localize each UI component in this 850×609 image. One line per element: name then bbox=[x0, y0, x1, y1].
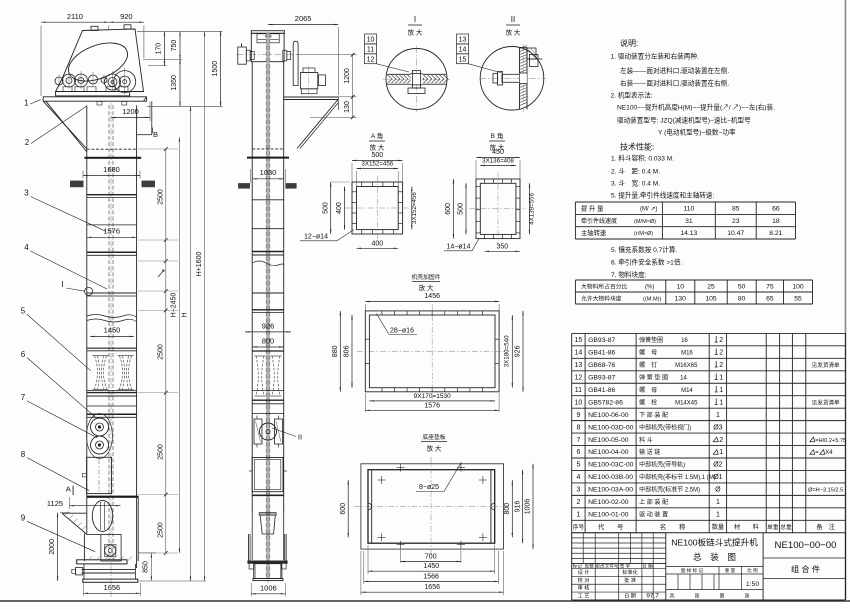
svg-text:2: 2 bbox=[719, 362, 723, 369]
svg-text:螺 母 M14: 螺 母 M14 bbox=[639, 386, 693, 394]
svg-text:工 艺: 工 艺 bbox=[578, 592, 590, 599]
svg-text:放 大: 放 大 bbox=[427, 444, 442, 453]
svg-text:弹 簧 垫 圈 14: 弹 簧 垫 圈 14 bbox=[639, 373, 687, 381]
svg-text:14.13: 14.13 bbox=[680, 230, 697, 237]
svg-text:14: 14 bbox=[459, 47, 467, 54]
svg-text:10: 10 bbox=[367, 37, 375, 44]
svg-text:放 大: 放 大 bbox=[408, 28, 423, 37]
svg-text:28−ø16: 28−ø16 bbox=[390, 328, 414, 335]
svg-text:8: 8 bbox=[576, 424, 580, 431]
svg-text:2. 机型表示法:: 2. 机型表示法: bbox=[611, 91, 653, 100]
svg-text:1: 1 bbox=[719, 449, 723, 456]
svg-text:5. 提升量,牵引件线速度和主轴转速:: 5. 提升量,牵引件线速度和主轴转速: bbox=[611, 191, 714, 200]
svg-text:NE100-03B-00: NE100-03B-00 bbox=[588, 474, 633, 481]
svg-text:130: 130 bbox=[344, 101, 351, 113]
svg-text:NE100−−提升机高度H(M)−−提升量(↗/ ↗)−−左: NE100−−提升机高度H(M)−−提升量(↗/ ↗)−−左(右)装. bbox=[617, 103, 775, 112]
svg-text:1576: 1576 bbox=[103, 227, 120, 236]
svg-text:放 大: 放 大 bbox=[370, 143, 385, 152]
svg-text:Ø: Ø bbox=[715, 487, 721, 494]
svg-text:签 字: 签 字 bbox=[620, 562, 631, 568]
svg-text:700: 700 bbox=[425, 554, 437, 561]
svg-text:75: 75 bbox=[766, 284, 774, 291]
svg-text:设 计: 设 计 bbox=[578, 568, 590, 576]
svg-text:65: 65 bbox=[766, 296, 774, 303]
svg-text:13: 13 bbox=[459, 37, 467, 44]
svg-text:1:50: 1:50 bbox=[746, 581, 759, 588]
svg-text:第: 第 bbox=[719, 593, 724, 600]
svg-text:12: 12 bbox=[575, 374, 583, 381]
svg-text:8−ø25: 8−ø25 bbox=[419, 484, 439, 491]
svg-text:机壳加固件: 机壳加固件 bbox=[412, 273, 441, 281]
svg-text:80: 80 bbox=[738, 296, 746, 303]
svg-text:2: 2 bbox=[25, 138, 30, 147]
svg-text:校 对: 校 对 bbox=[578, 576, 590, 584]
svg-text:见发货清单: 见发货清单 bbox=[812, 398, 840, 406]
svg-text:6: 6 bbox=[21, 350, 26, 359]
svg-text:100: 100 bbox=[792, 284, 804, 291]
svg-text:=H/0.2+5.75: =H/0.2+5.75 bbox=[815, 438, 846, 444]
svg-text:GB93-87: GB93-87 bbox=[588, 374, 615, 381]
svg-text:7: 7 bbox=[576, 437, 580, 444]
svg-text:5. 镶充系数按 0.7计算.: 5. 镶充系数按 0.7计算. bbox=[611, 245, 677, 254]
svg-text:弹簧垫圈 16: 弹簧垫圈 16 bbox=[639, 336, 688, 344]
svg-text:2110: 2110 bbox=[67, 12, 83, 21]
svg-text:I: I bbox=[414, 15, 416, 24]
svg-text:右装——面对进料口,驱动装置在右侧.: 右装——面对进料口,驱动装置在右侧. bbox=[620, 79, 729, 88]
svg-text:GB41-86: GB41-86 bbox=[588, 350, 615, 357]
svg-text:中部机壳(非标节 1.5M),1 (M): 中部机壳(非标节 1.5M),1 (M) bbox=[639, 473, 716, 481]
svg-text:中部机壳(标准节 2.5M): 中部机壳(标准节 2.5M) bbox=[639, 486, 700, 494]
svg-text:2: 2 bbox=[719, 437, 723, 444]
svg-text:170: 170 bbox=[156, 43, 163, 55]
svg-text:料 斗: 料 斗 bbox=[639, 436, 653, 444]
svg-text:3X136=408: 3X136=408 bbox=[482, 158, 514, 165]
svg-text:驱动装置型号: JZQ(减速机型号)−速比−机型号: 驱动装置型号: JZQ(减速机型号)−速比−机型号 bbox=[617, 116, 751, 125]
svg-text:66: 66 bbox=[772, 206, 780, 213]
svg-text:1. 驱动装置分左装和右装两种.: 1. 驱动装置分左装和右装两种. bbox=[611, 52, 699, 61]
svg-text:底座垫板: 底座垫板 bbox=[422, 433, 445, 441]
svg-text:5: 5 bbox=[576, 462, 580, 469]
svg-text:NE100-05-00: NE100-05-00 bbox=[588, 437, 629, 444]
svg-text:450: 450 bbox=[492, 149, 504, 156]
svg-text:2: 2 bbox=[719, 337, 723, 344]
svg-text:3X152=456: 3X152=456 bbox=[361, 161, 393, 168]
svg-text:B 角: B 角 bbox=[491, 131, 504, 140]
svg-text:110: 110 bbox=[683, 206, 694, 213]
svg-text:2500: 2500 bbox=[157, 189, 164, 205]
svg-text:2. 斗 距: 0.4 M.: 2. 斗 距: 0.4 M. bbox=[611, 168, 660, 176]
svg-text:NE100-06-00: NE100-06-00 bbox=[588, 412, 629, 419]
svg-text:600: 600 bbox=[340, 503, 347, 515]
svg-text:NE100-03D-00: NE100-03D-00 bbox=[588, 424, 634, 431]
svg-text:数量: 数量 bbox=[712, 523, 724, 531]
svg-text:4X139=556: 4X139=556 bbox=[529, 192, 536, 224]
svg-text:Ø3: Ø3 bbox=[713, 424, 722, 431]
svg-text:II: II bbox=[511, 15, 515, 24]
svg-text:2500: 2500 bbox=[157, 522, 164, 538]
svg-text:I: I bbox=[61, 280, 63, 289]
svg-text:见发货清单: 见发货清单 bbox=[812, 361, 840, 369]
svg-text:A: A bbox=[66, 485, 71, 494]
svg-text:1566: 1566 bbox=[423, 573, 439, 580]
svg-text:2065: 2065 bbox=[295, 14, 312, 23]
svg-text:10: 10 bbox=[677, 284, 685, 291]
svg-text:9: 9 bbox=[576, 412, 580, 419]
svg-text:GB68-76: GB68-76 bbox=[588, 362, 615, 369]
svg-text:技术性能:: 技术性能: bbox=[620, 142, 654, 152]
svg-text:10.47: 10.47 bbox=[727, 230, 744, 237]
svg-text:NE100-01-00: NE100-01-00 bbox=[588, 512, 629, 519]
svg-text:NE100−00−00: NE100−00−00 bbox=[775, 540, 837, 551]
svg-text:12: 12 bbox=[367, 57, 375, 64]
svg-text:6: 6 bbox=[576, 449, 580, 456]
svg-text:1200: 1200 bbox=[122, 107, 139, 116]
svg-text:更改文件号: 更改文件号 bbox=[596, 562, 619, 569]
svg-text:8.21: 8.21 bbox=[769, 230, 782, 237]
svg-text:800: 800 bbox=[504, 503, 511, 515]
svg-text:750: 750 bbox=[171, 40, 178, 52]
svg-text:10: 10 bbox=[575, 399, 583, 406]
svg-text:=: = bbox=[815, 450, 819, 456]
svg-text:处数: 处数 bbox=[585, 562, 595, 569]
svg-text:3: 3 bbox=[576, 487, 580, 494]
svg-text:920: 920 bbox=[120, 12, 133, 21]
svg-text:NE100-03A-00: NE100-03A-00 bbox=[588, 487, 633, 494]
svg-text:主轴转速: 主轴转速 bbox=[581, 228, 607, 237]
svg-text:1456: 1456 bbox=[424, 293, 440, 300]
svg-text:1006: 1006 bbox=[260, 584, 277, 593]
svg-text:1350: 1350 bbox=[171, 75, 178, 91]
svg-text:螺 母 M16: 螺 母 M16 bbox=[639, 349, 693, 357]
svg-text:总重: 总重 bbox=[780, 523, 792, 531]
svg-text:审 核: 审 核 bbox=[578, 584, 590, 592]
svg-text:H+1600: H+1600 bbox=[196, 252, 203, 277]
svg-text:105: 105 bbox=[705, 296, 717, 303]
svg-text:下 部 装 配: 下 部 装 配 bbox=[639, 411, 668, 419]
svg-text:400: 400 bbox=[372, 241, 384, 248]
svg-text:15: 15 bbox=[575, 337, 583, 344]
svg-text:12−ø14: 12−ø14 bbox=[304, 234, 328, 241]
svg-text:11: 11 bbox=[367, 47, 374, 54]
svg-text:1: 1 bbox=[719, 387, 723, 394]
svg-text:1: 1 bbox=[576, 512, 580, 519]
svg-text:1500: 1500 bbox=[212, 61, 219, 77]
svg-text:55: 55 bbox=[794, 296, 802, 303]
svg-text:(%): (%) bbox=[645, 285, 654, 291]
svg-text:11: 11 bbox=[575, 387, 582, 394]
svg-text:(M/M≈Ø): (M/M≈Ø) bbox=[634, 219, 656, 225]
svg-text:允许大物料块度: 允许大物料块度 bbox=[581, 295, 622, 303]
svg-text:1: 1 bbox=[716, 512, 720, 519]
svg-text:1: 1 bbox=[719, 399, 723, 406]
svg-text:X4: X4 bbox=[825, 450, 833, 456]
svg-text:3X180=540: 3X180=540 bbox=[504, 335, 511, 367]
svg-text:牵引件线速度: 牵引件线速度 bbox=[581, 217, 617, 225]
svg-text:张: 张 bbox=[744, 593, 749, 600]
svg-text:1006: 1006 bbox=[525, 499, 532, 515]
svg-text:1030: 1030 bbox=[260, 168, 277, 177]
svg-text:比 例: 比 例 bbox=[747, 567, 758, 574]
svg-text:((M.M)): ((M.M)) bbox=[643, 297, 661, 303]
svg-text:日 期: 日 期 bbox=[624, 592, 636, 599]
svg-text:5: 5 bbox=[21, 307, 26, 316]
svg-text:880: 880 bbox=[332, 345, 339, 357]
svg-text:3: 3 bbox=[24, 189, 29, 198]
svg-text:3. 斗 宽: 0.4 M.: 3. 斗 宽: 0.4 M. bbox=[611, 179, 660, 188]
svg-text:2000: 2000 bbox=[49, 539, 56, 555]
svg-text:15: 15 bbox=[459, 57, 467, 64]
svg-text:张: 张 bbox=[694, 593, 699, 600]
svg-text:600: 600 bbox=[445, 203, 452, 215]
svg-text:上 部 装 配: 上 部 装 配 bbox=[639, 498, 668, 506]
svg-text:NE100-04-00: NE100-04-00 bbox=[588, 449, 629, 456]
svg-text:500: 500 bbox=[371, 152, 383, 159]
svg-text:NE100-03C-00: NE100-03C-00 bbox=[588, 462, 634, 469]
svg-text:1. 料斗容积: 0.033 M.: 1. 料斗容积: 0.033 M. bbox=[611, 154, 674, 163]
svg-text:25: 25 bbox=[707, 284, 715, 291]
svg-text:23: 23 bbox=[732, 218, 740, 225]
svg-text:1200: 1200 bbox=[344, 68, 351, 84]
svg-text:组 合 件: 组 合 件 bbox=[791, 564, 820, 574]
svg-text:2: 2 bbox=[719, 350, 723, 357]
svg-text:1450: 1450 bbox=[424, 563, 440, 570]
svg-text:1: 1 bbox=[719, 374, 723, 381]
svg-text:GB93-87: GB93-87 bbox=[588, 337, 615, 344]
svg-text:GB41-86: GB41-86 bbox=[588, 387, 615, 394]
svg-text:Ø=H−3.15/2.5: Ø=H−3.15/2.5 bbox=[808, 488, 843, 494]
svg-text:螺 栓 M14X45: 螺 栓 M14X45 bbox=[639, 398, 698, 406]
svg-text:3X152=456: 3X152=456 bbox=[411, 192, 418, 224]
svg-text:7: 7 bbox=[21, 393, 26, 402]
svg-text:名 称: 名 称 bbox=[660, 522, 686, 531]
svg-text:926: 926 bbox=[262, 321, 275, 330]
svg-text:螺 钉 M16X65: 螺 钉 M16X65 bbox=[639, 361, 698, 369]
svg-text:Ø2: Ø2 bbox=[713, 462, 722, 469]
svg-text:1680: 1680 bbox=[103, 165, 120, 174]
svg-text:1576: 1576 bbox=[424, 403, 440, 410]
svg-text:提 升 量: 提 升 量 bbox=[581, 204, 604, 213]
svg-text:8: 8 bbox=[21, 450, 26, 459]
svg-text:放 大: 放 大 bbox=[419, 283, 434, 292]
svg-text:序号: 序号 bbox=[573, 523, 585, 531]
svg-text:NE100-02-00: NE100-02-00 bbox=[588, 499, 629, 506]
svg-text:1125: 1125 bbox=[47, 499, 63, 508]
svg-text:14: 14 bbox=[575, 350, 583, 357]
svg-text:350: 350 bbox=[496, 244, 508, 251]
svg-text:7. 物料块度:: 7. 物料块度: bbox=[611, 270, 647, 279]
svg-text:备 注: 备 注 bbox=[816, 523, 835, 531]
svg-text:H−2450: H−2450 bbox=[171, 293, 178, 318]
svg-text:18: 18 bbox=[772, 218, 780, 225]
svg-text:6. 牵引件安全系数 >1倍.: 6. 牵引件安全系数 >1倍. bbox=[611, 258, 682, 267]
svg-text:4: 4 bbox=[576, 474, 580, 481]
svg-text:2500: 2500 bbox=[157, 344, 164, 360]
svg-text:A 角: A 角 bbox=[371, 131, 383, 140]
svg-text:9X170=1530: 9X170=1530 bbox=[414, 393, 451, 400]
svg-text:2500: 2500 bbox=[157, 444, 164, 460]
svg-text:1656: 1656 bbox=[104, 583, 121, 592]
svg-text:850: 850 bbox=[143, 561, 150, 573]
svg-text:(M/ ↗): (M/ ↗) bbox=[640, 207, 657, 213]
svg-text:97.7: 97.7 bbox=[646, 592, 659, 599]
svg-text:B: B bbox=[153, 130, 158, 139]
svg-text:说明:: 说明: bbox=[620, 38, 638, 48]
svg-text:31: 31 bbox=[685, 218, 693, 225]
svg-text:单重: 单重 bbox=[767, 523, 779, 531]
svg-text:1: 1 bbox=[716, 499, 720, 506]
svg-text:9: 9 bbox=[21, 514, 26, 523]
svg-text:标准化: 标准化 bbox=[622, 568, 638, 576]
svg-text:2: 2 bbox=[576, 499, 580, 506]
svg-text:输 送 链: 输 送 链 bbox=[639, 448, 660, 456]
svg-text:中部机壳(带导轨): 中部机壳(带导轨) bbox=[639, 461, 685, 469]
svg-text:中部机壳(带检视门): 中部机壳(带检视门) bbox=[639, 423, 691, 431]
svg-text:总 装 图: 总 装 图 bbox=[693, 551, 736, 562]
svg-text:1: 1 bbox=[716, 412, 720, 419]
svg-text:500: 500 bbox=[322, 202, 329, 214]
svg-text:85: 85 bbox=[732, 206, 740, 213]
svg-text:Y (电动机型号)−级数−功率: Y (电动机型号)−级数−功率 bbox=[658, 128, 736, 137]
svg-text:1450: 1450 bbox=[104, 325, 121, 334]
svg-text:4: 4 bbox=[24, 243, 29, 252]
svg-text:放 大: 放 大 bbox=[506, 28, 521, 37]
svg-text:NE100板链斗式提升机: NE100板链斗式提升机 bbox=[671, 537, 758, 548]
svg-text:500: 500 bbox=[458, 203, 465, 215]
svg-text:130: 130 bbox=[675, 296, 687, 303]
svg-text:926: 926 bbox=[515, 345, 522, 357]
svg-text:批 准: 批 准 bbox=[624, 576, 636, 584]
svg-text:代 号: 代 号 bbox=[598, 522, 624, 531]
svg-text:大物料所占百分比: 大物料所占百分比 bbox=[581, 283, 628, 291]
svg-text:材 料: 材 料 bbox=[734, 523, 759, 531]
svg-text:806: 806 bbox=[344, 345, 351, 357]
svg-text:图 样 标 记: 图 样 标 记 bbox=[681, 567, 704, 574]
svg-text:13: 13 bbox=[575, 362, 583, 369]
svg-text:标记: 标记 bbox=[573, 562, 583, 569]
svg-text:50: 50 bbox=[738, 284, 746, 291]
svg-text:H: H bbox=[182, 312, 189, 317]
svg-text:驱 动 装 置: 驱 动 装 置 bbox=[639, 511, 668, 519]
svg-text:共: 共 bbox=[669, 593, 674, 600]
svg-text:400: 400 bbox=[336, 202, 343, 214]
svg-text:916: 916 bbox=[514, 501, 521, 513]
svg-text:左装——面对进料口,驱动装置在左侧.: 左装——面对进料口,驱动装置在左侧. bbox=[620, 66, 729, 75]
svg-text:GB5782-86: GB5782-86 bbox=[588, 399, 623, 406]
svg-text:重 量: 重 量 bbox=[725, 567, 736, 574]
svg-text:II: II bbox=[298, 433, 302, 442]
svg-text:14−ø14: 14−ø14 bbox=[447, 244, 471, 251]
svg-text:1656: 1656 bbox=[424, 584, 440, 591]
svg-text:800: 800 bbox=[262, 336, 275, 345]
svg-text:1: 1 bbox=[24, 99, 29, 108]
svg-text:(r/M≈Ø): (r/M≈Ø) bbox=[634, 231, 653, 237]
svg-text:Ø1: Ø1 bbox=[713, 474, 722, 481]
